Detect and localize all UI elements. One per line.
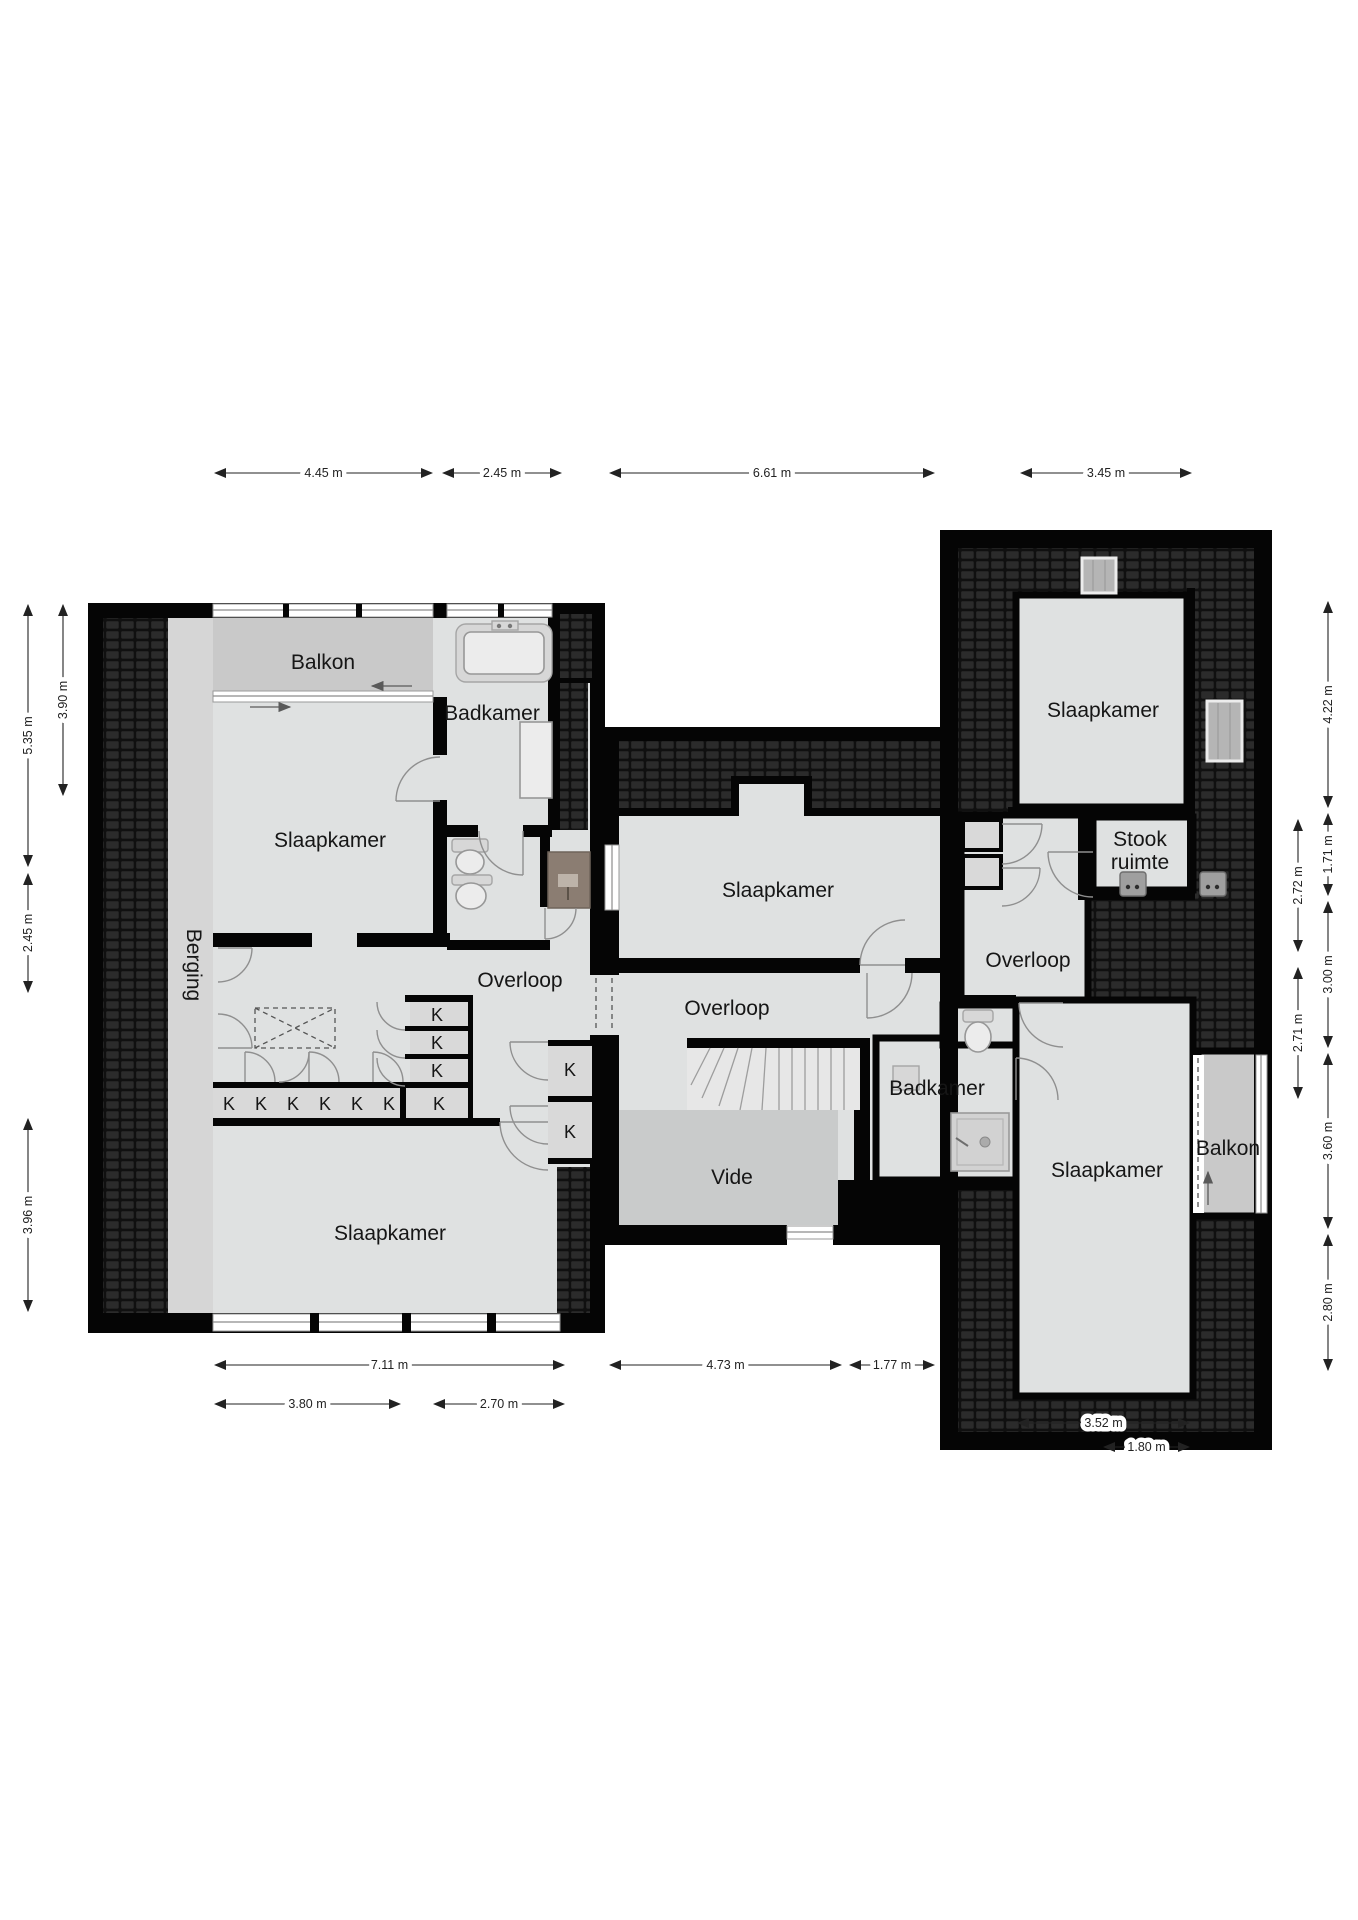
room-label-badkamer-left: Badkamer <box>444 702 540 725</box>
dim-h-380: 3.80 m <box>215 1397 400 1411</box>
closet-label-k: K <box>433 1094 445 1114</box>
closet-label-k: K <box>431 1033 443 1053</box>
dormer-floor <box>739 784 804 816</box>
svg-text:3.60 m: 3.60 m <box>1321 1122 1335 1160</box>
dim-h-270: 2.70 m <box>434 1397 564 1411</box>
room-label-overloop-left: Overloop <box>477 969 562 992</box>
closet-label-k: K <box>383 1094 395 1114</box>
floorplan-svg: BalkonBadkamerSlaapkamerBergingOverloopS… <box>0 0 1358 1920</box>
shower-middle <box>951 1113 1009 1171</box>
svg-text:2.70 m: 2.70 m <box>480 1397 518 1411</box>
svg-text:4.73 m: 4.73 m <box>706 1358 744 1372</box>
toilet <box>452 839 488 874</box>
room-label-slaapkamer-right-top: Slaapkamer <box>1047 699 1159 722</box>
staircase <box>687 1048 860 1110</box>
room-label-overloop-middle: Overloop <box>684 997 769 1020</box>
svg-text:2.71 m: 2.71 m <box>1291 1014 1305 1052</box>
svg-text:7.11 m: 7.11 m <box>371 1358 408 1372</box>
dim-v-396: 3.96 m <box>21 1119 35 1311</box>
svg-text:3.00 m: 3.00 m <box>1321 955 1335 993</box>
floorplan-page: BalkonBadkamerSlaapkamerBergingOverloopS… <box>0 0 1358 1920</box>
svg-text:3.96 m: 3.96 m <box>21 1196 35 1234</box>
roof-window <box>1207 701 1242 761</box>
dim-h-177: 1.77 m <box>850 1358 934 1372</box>
room-label-vide: Vide <box>711 1166 753 1189</box>
roof-window <box>1082 558 1116 593</box>
room-label-slaapkamer-top-left: Slaapkamer <box>274 829 386 852</box>
room-label-slaapkamer-right-bottom: Slaapkamer <box>1051 1159 1163 1182</box>
dim-h-445: 4.45 m <box>215 466 432 480</box>
dim-v-245: 2.45 m <box>21 874 35 992</box>
closet-label-k: K <box>431 1005 443 1025</box>
closet-row <box>213 1088 400 1118</box>
dim-v-280: 2.80 m <box>1321 1235 1335 1370</box>
dim-v-422: 4.22 m <box>1321 602 1335 807</box>
closet-label-k: K <box>319 1094 331 1114</box>
room-label-slaapkamer-middle: Slaapkamer <box>722 879 834 902</box>
room-label-balkon-left: Balkon <box>291 651 355 674</box>
dim-v-171: 1.71 m <box>1321 814 1335 895</box>
dim-v-271: 2.71 m <box>1291 968 1305 1098</box>
room-label-berging: Berging <box>182 929 205 1001</box>
dim-h-345: 3.45 m <box>1021 466 1191 480</box>
closet-label-k: K <box>255 1094 267 1114</box>
room-label-badkamer-middle: Badkamer <box>889 1077 985 1100</box>
closet-label-k: K <box>431 1061 443 1081</box>
vide-window <box>787 1226 833 1239</box>
boiler <box>1120 872 1146 896</box>
closet-label-k: K <box>223 1094 235 1114</box>
connector-doorway <box>588 975 621 1035</box>
svg-text:2.72 m: 2.72 m <box>1291 866 1305 904</box>
toilet-middle <box>963 1010 993 1052</box>
svg-text:5.35 m: 5.35 m <box>21 716 35 754</box>
boiler <box>1200 872 1226 896</box>
dim-v-272: 2.72 m <box>1291 820 1305 951</box>
washbasin <box>520 722 552 798</box>
balkon-top-windows <box>213 604 433 617</box>
svg-text:1.77 m: 1.77 m <box>873 1358 911 1372</box>
svg-text:3.90 m: 3.90 m <box>56 681 70 719</box>
dim-v-535: 5.35 m <box>21 605 35 866</box>
dim-h-473: 4.73 m <box>610 1358 841 1372</box>
dim-v-360: 3.60 m <box>1321 1054 1335 1228</box>
dim-h-661: 6.61 m <box>610 466 934 480</box>
dim-h-245: 2.45 m <box>443 466 561 480</box>
slaapkamer-right-bottom-floor <box>1016 1000 1193 1396</box>
left-roof-strip <box>103 618 168 1313</box>
closet-label-k: K <box>564 1122 576 1142</box>
svg-text:6.61 m: 6.61 m <box>753 466 791 480</box>
shower-corner <box>548 852 590 908</box>
svg-text:1.80 m: 1.80 m <box>1127 1440 1165 1454</box>
room-label-stook-ruimte: Stookruimte <box>1111 828 1169 874</box>
dim-h-711: 7.11 m <box>215 1358 564 1372</box>
room-label-slaapkamer-bottom-left: Slaapkamer <box>334 1222 446 1245</box>
svg-text:4.45 m: 4.45 m <box>304 466 342 480</box>
dim-v-390: 3.90 m <box>56 605 70 795</box>
room-label-balkon-right: Balkon <box>1196 1137 1260 1160</box>
closet-cell <box>963 856 1001 888</box>
svg-text:2.45 m: 2.45 m <box>21 914 35 952</box>
svg-text:4.22 m: 4.22 m <box>1321 685 1335 723</box>
dim-v-300: 3.00 m <box>1321 902 1335 1047</box>
svg-text:2.45 m: 2.45 m <box>483 466 521 480</box>
room-label-overloop-right: Overloop <box>985 949 1070 972</box>
svg-text:3.80 m: 3.80 m <box>288 1397 326 1411</box>
middle-left-window <box>605 845 619 910</box>
bathtub <box>456 621 552 682</box>
badkamer-top-windows <box>447 604 552 617</box>
closet-label-k: K <box>351 1094 363 1114</box>
svg-text:1.71 m: 1.71 m <box>1321 835 1335 873</box>
svg-text:3.52 m: 3.52 m <box>1084 1416 1122 1430</box>
closet-label-k: K <box>287 1094 299 1114</box>
closet-label-k: K <box>564 1060 576 1080</box>
balkon-right-railing <box>1256 1055 1267 1213</box>
closet-cell <box>963 820 1001 850</box>
bottom-windows <box>213 1313 560 1333</box>
svg-text:2.80 m: 2.80 m <box>1321 1283 1335 1321</box>
svg-text:3.45 m: 3.45 m <box>1087 466 1125 480</box>
